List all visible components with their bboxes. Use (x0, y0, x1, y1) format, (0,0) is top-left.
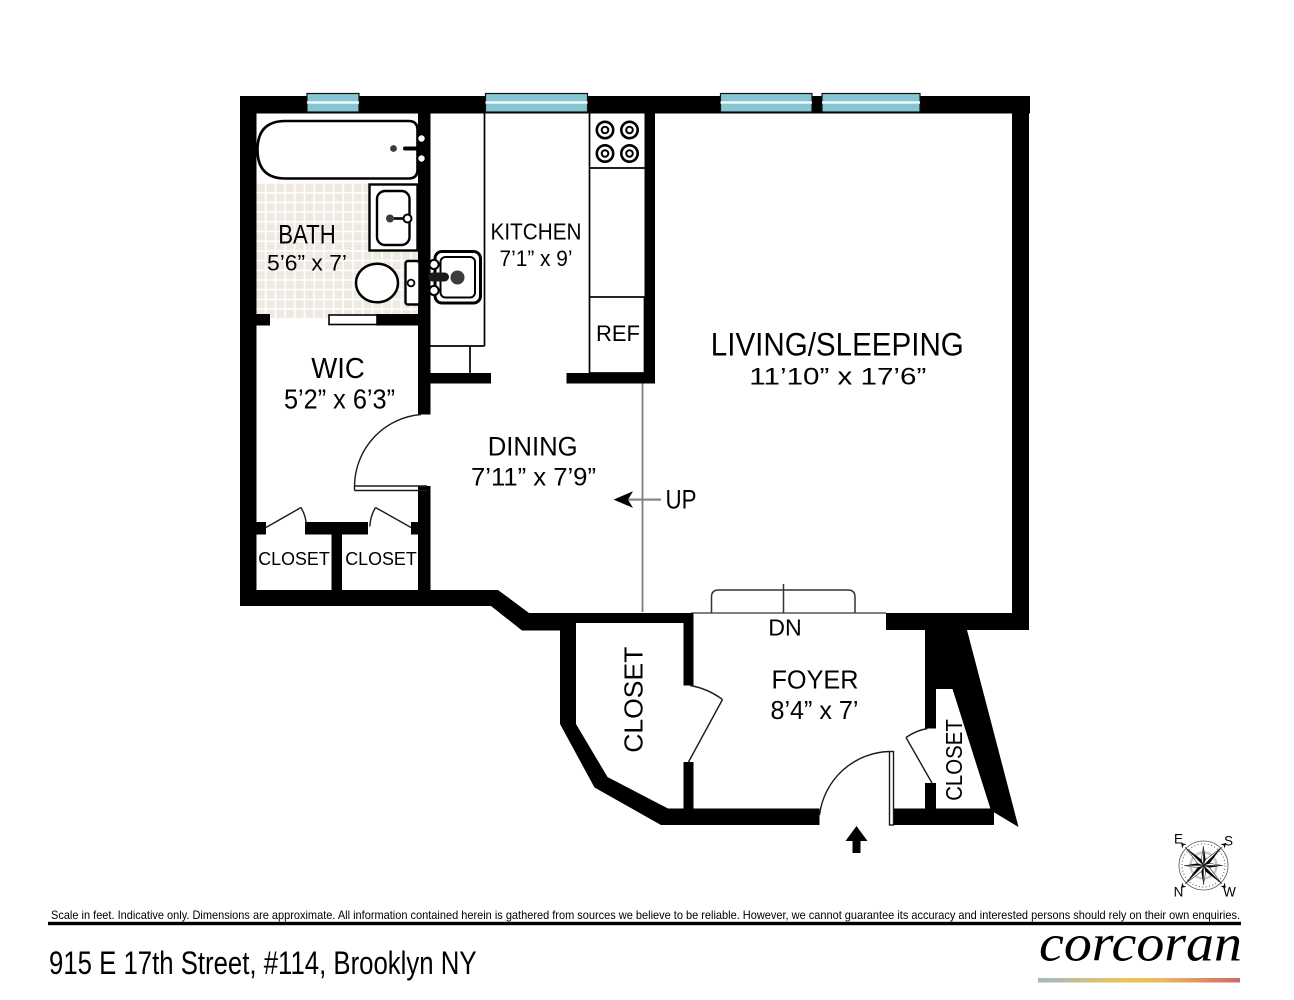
svg-text:CLOSET: CLOSET (258, 549, 330, 569)
svg-text:DINING: DINING (488, 432, 578, 462)
svg-text:11’10” x 17’6”: 11’10” x 17’6” (749, 364, 926, 391)
svg-text:FOYER: FOYER (772, 665, 859, 695)
svg-text:E: E (1174, 832, 1183, 847)
svg-text:5’6” x 7’: 5’6” x 7’ (267, 251, 347, 276)
svg-text:CLOSET: CLOSET (345, 549, 417, 569)
svg-text:7’1” x 9’: 7’1” x 9’ (500, 246, 573, 271)
svg-text:S: S (1224, 834, 1233, 849)
svg-text:KITCHEN: KITCHEN (491, 219, 582, 245)
svg-text:8’4” x 7’: 8’4” x 7’ (771, 695, 859, 725)
svg-text:CLOSET: CLOSET (941, 719, 967, 801)
svg-text:CLOSET: CLOSET (618, 647, 648, 753)
svg-text:DN: DN (768, 615, 802, 641)
svg-text:REF: REF (596, 321, 640, 346)
svg-text:5’2” x 6’3”: 5’2” x 6’3” (284, 383, 395, 414)
svg-text:7’11” x 7’9”: 7’11” x 7’9” (471, 465, 596, 492)
svg-text:N: N (1174, 885, 1184, 900)
svg-text:WIC: WIC (311, 353, 365, 385)
svg-text:BATH: BATH (278, 220, 336, 250)
svg-text:corcoran: corcoran (1039, 916, 1242, 973)
svg-text:LIVING/SLEEPING: LIVING/SLEEPING (711, 327, 964, 363)
svg-text:915 E 17th Street, #114, Brook: 915 E 17th Street, #114, Brooklyn NY (49, 945, 477, 981)
svg-text:W: W (1223, 885, 1236, 900)
svg-text:UP: UP (666, 485, 697, 515)
